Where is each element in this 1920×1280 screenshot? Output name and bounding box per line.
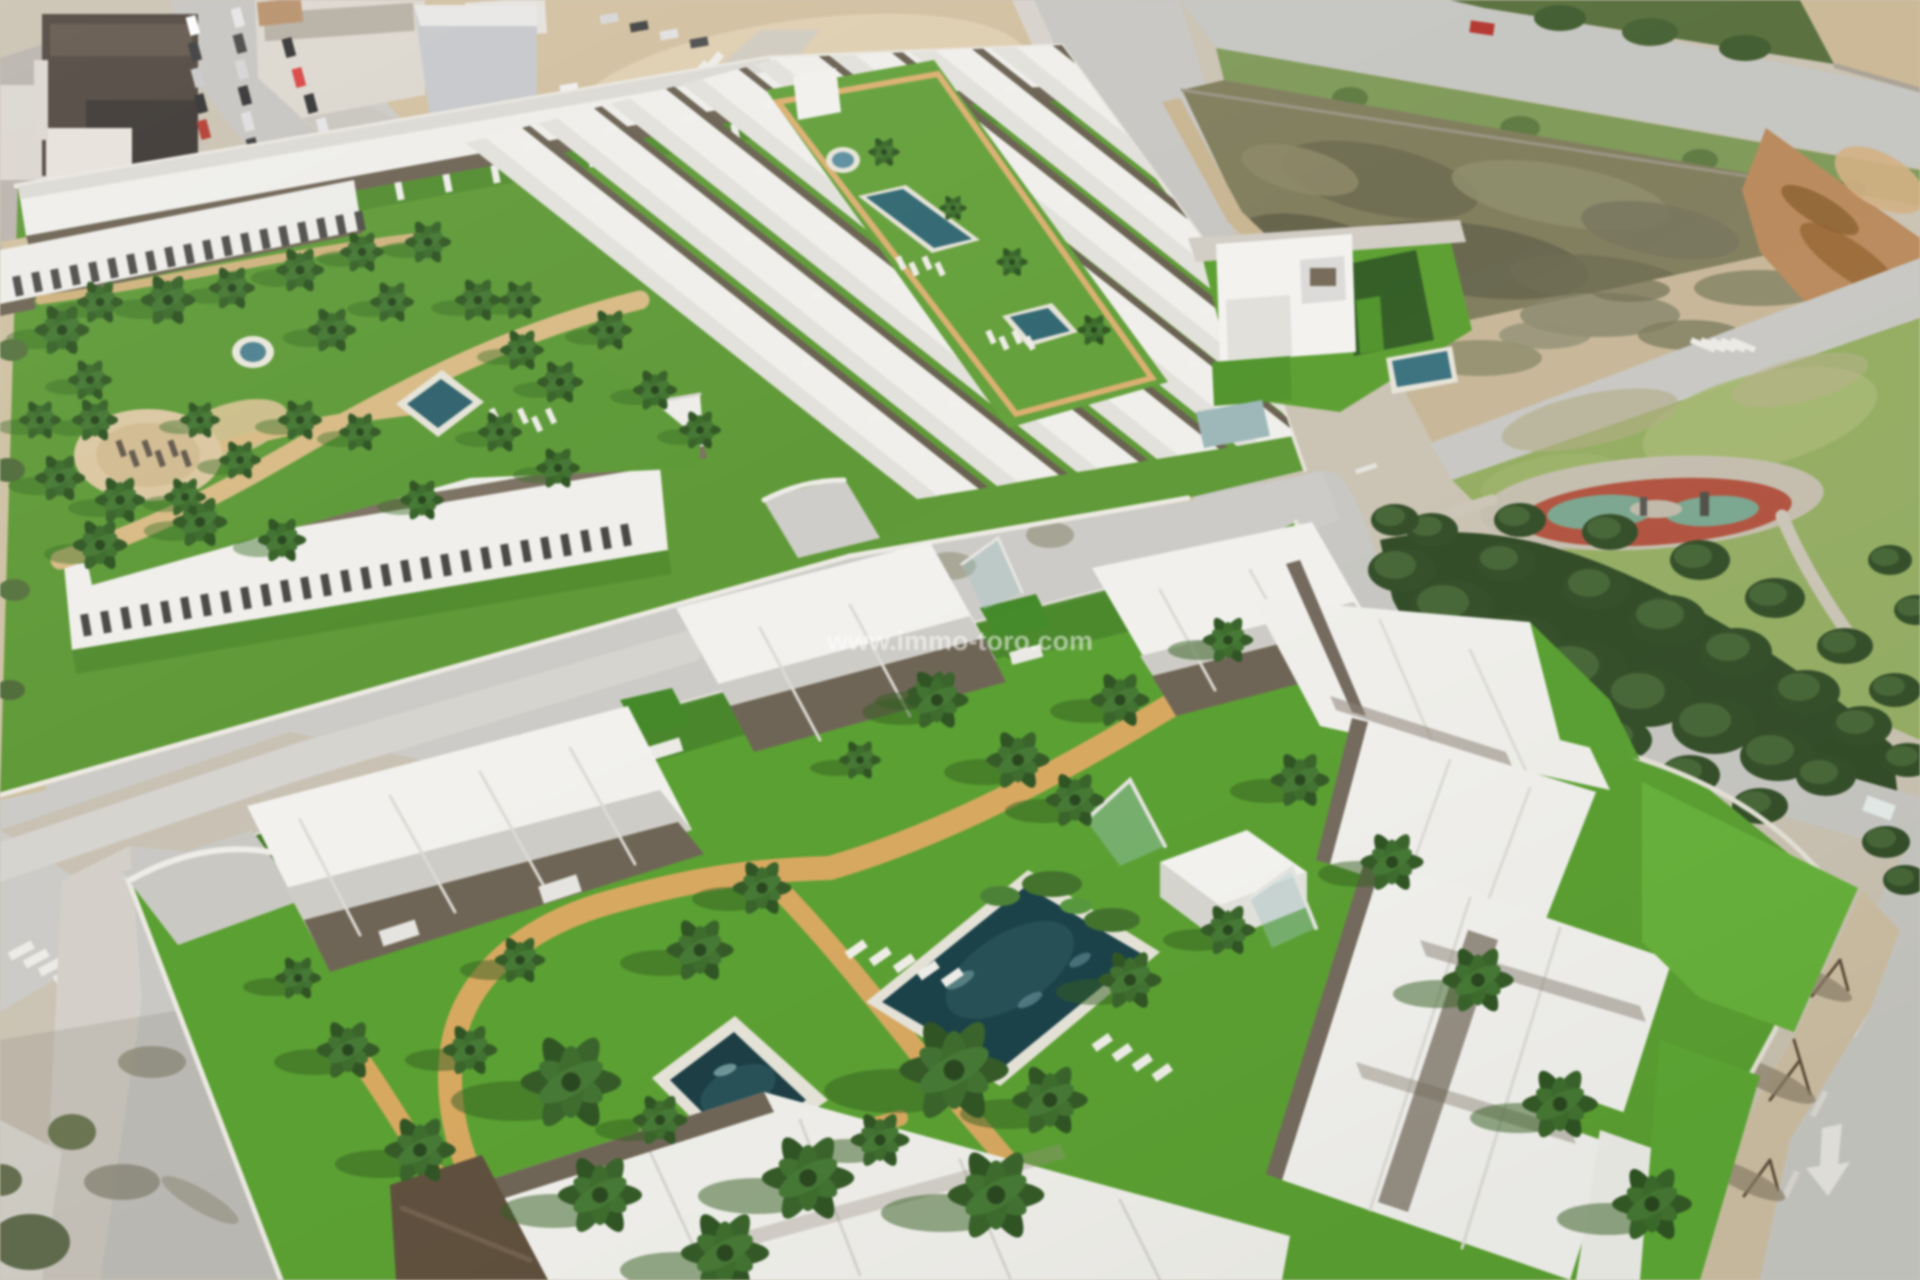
svg-text:www.immo-toro.com: www.immo-toro.com bbox=[826, 626, 1093, 656]
